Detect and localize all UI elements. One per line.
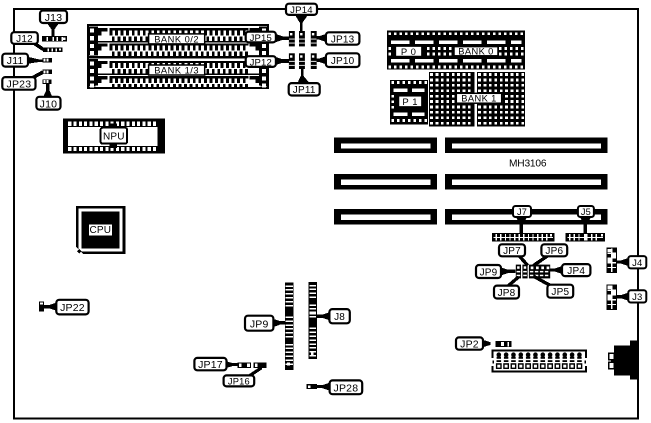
svg-text:NPU: NPU — [103, 132, 125, 143]
svg-text:JP22: JP22 — [60, 302, 85, 314]
svg-text:JP13: JP13 — [331, 34, 355, 45]
svg-text:J8: J8 — [334, 312, 345, 323]
svg-text:JP28: JP28 — [334, 382, 359, 394]
svg-text:JP8: JP8 — [498, 288, 516, 299]
svg-text:BANK 1: BANK 1 — [461, 94, 496, 104]
svg-text:JP14: JP14 — [290, 5, 313, 16]
svg-text:BANK 1/3: BANK 1/3 — [154, 65, 199, 75]
svg-text:P 0: P 0 — [401, 47, 417, 58]
svg-text:BANK 0/2: BANK 0/2 — [154, 34, 199, 44]
svg-text:JP23: JP23 — [7, 78, 32, 90]
svg-text:JP15: JP15 — [250, 33, 272, 44]
svg-text:JP5: JP5 — [551, 287, 569, 298]
svg-text:JP11: JP11 — [293, 85, 316, 96]
svg-text:JP10: JP10 — [331, 56, 355, 67]
svg-text:JP4: JP4 — [567, 266, 585, 277]
svg-text:JP9: JP9 — [250, 318, 269, 330]
svg-text:J12: J12 — [16, 34, 33, 45]
svg-text:J7: J7 — [517, 207, 527, 217]
svg-text:BANK 0: BANK 0 — [458, 47, 493, 57]
svg-text:J13: J13 — [45, 12, 63, 24]
svg-text:JP2: JP2 — [460, 339, 479, 351]
svg-text:J10: J10 — [40, 98, 58, 110]
svg-text:J11: J11 — [7, 55, 24, 67]
svg-text:J4: J4 — [632, 258, 642, 269]
svg-text:MH3106: MH3106 — [509, 159, 547, 170]
svg-text:J3: J3 — [632, 292, 642, 303]
svg-text:CPU: CPU — [89, 225, 111, 236]
svg-text:JP16: JP16 — [228, 377, 250, 387]
svg-text:JP12: JP12 — [250, 57, 272, 68]
svg-text:J5: J5 — [581, 207, 591, 217]
svg-text:JP7: JP7 — [503, 246, 521, 257]
svg-text:JP17: JP17 — [198, 359, 223, 371]
svg-text:P 1: P 1 — [402, 97, 418, 108]
svg-text:JP6: JP6 — [545, 246, 563, 257]
svg-text:JP9: JP9 — [480, 267, 498, 278]
